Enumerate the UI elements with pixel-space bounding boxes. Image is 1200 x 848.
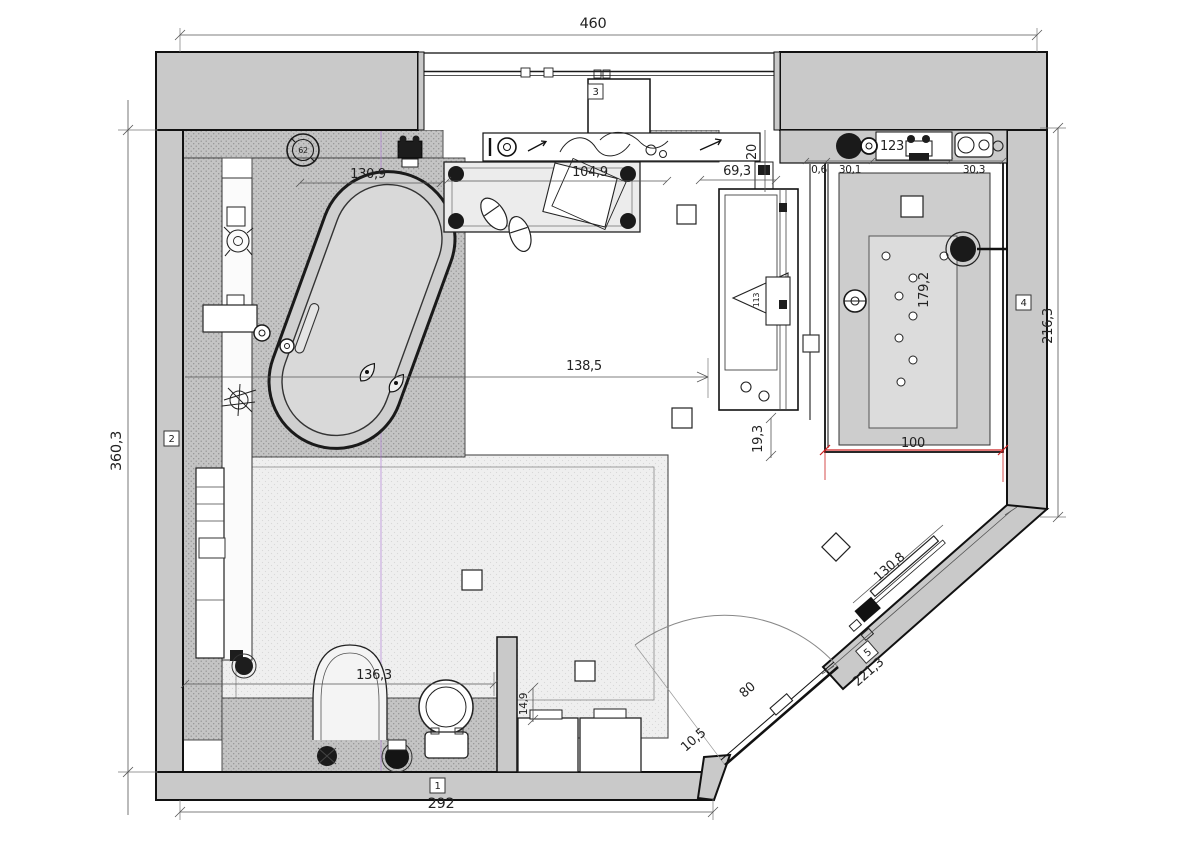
toilet [419, 680, 473, 758]
wall-top-left [156, 52, 418, 130]
dim-edge-gap: 19,3 [751, 425, 766, 453]
dim-shower-top-width: 123 [880, 139, 904, 154]
dim-recess-width: 69,3 [723, 164, 751, 179]
shower [825, 162, 1007, 452]
window-latch-icon [544, 68, 553, 77]
bench [444, 158, 640, 232]
wall-door-cap [698, 755, 730, 800]
marker-3: 3 [588, 84, 603, 99]
marker-4: 4 [1016, 295, 1031, 310]
hamper-arch [313, 645, 387, 740]
dim-door-swing: 80 [737, 679, 759, 701]
door-leaf [725, 667, 838, 765]
dim-heater-width: 113 [752, 293, 761, 308]
floor-plan-drawing: 62 [0, 0, 1200, 848]
window-latch-icon [521, 68, 530, 77]
dim-shower-length: 179,2 [917, 272, 932, 308]
wall-niche [203, 305, 257, 332]
svg-text:3: 3 [592, 87, 598, 98]
vanity-shelf [483, 132, 760, 161]
stools [518, 709, 641, 772]
dim-bench-width: 104,9 [572, 165, 608, 180]
heater-unit: 113 [719, 162, 798, 410]
fan-icon [836, 133, 862, 159]
dim-glass-thickness: 0,6 [811, 164, 827, 176]
niche-column [588, 70, 650, 136]
wall-left [156, 130, 183, 772]
dim-shower-width: 100 [901, 436, 925, 451]
svg-text:1: 1 [434, 781, 440, 792]
spot-icon [861, 138, 877, 154]
dim-panel-width: 30,1 [839, 164, 861, 176]
marker-1: 1 [430, 778, 445, 793]
dim-hinge-offset: 10,5 [678, 726, 709, 756]
dim-platform-width: 130,9 [350, 167, 386, 182]
dim-top-width: 460 [580, 16, 607, 32]
side-cabinet [196, 468, 225, 658]
svg-text:2: 2 [168, 434, 174, 445]
wall-top-right [780, 52, 1047, 130]
marker-2: 2 [164, 431, 179, 446]
shower-drain [901, 196, 923, 217]
wall-diagonal [823, 505, 1047, 689]
jet-panel [869, 236, 957, 428]
dim-bottom-width: 292 [428, 796, 455, 812]
floor-plan-canvas: 62 [0, 0, 1200, 848]
dim-floor-span: 138,5 [566, 359, 602, 374]
dim-left-height: 360,3 [109, 431, 125, 471]
dim-corner-width: 30,3 [963, 164, 985, 176]
dim-stool-depth: 14,9 [518, 693, 530, 715]
dim-rug-width: 136,3 [356, 668, 392, 683]
dim-door-clearance: 20 [745, 144, 760, 160]
diamond-marker [822, 533, 850, 561]
dial-reading: 62 [298, 146, 308, 155]
door-handle-icon [803, 335, 819, 352]
dim-right-height: 216,3 [1041, 308, 1056, 344]
svg-text:4: 4 [1020, 298, 1026, 309]
mirror-icon [498, 138, 516, 156]
mixer-valve-icon [844, 290, 866, 312]
partition-stub [497, 637, 517, 772]
door-handle-icon [770, 694, 793, 715]
